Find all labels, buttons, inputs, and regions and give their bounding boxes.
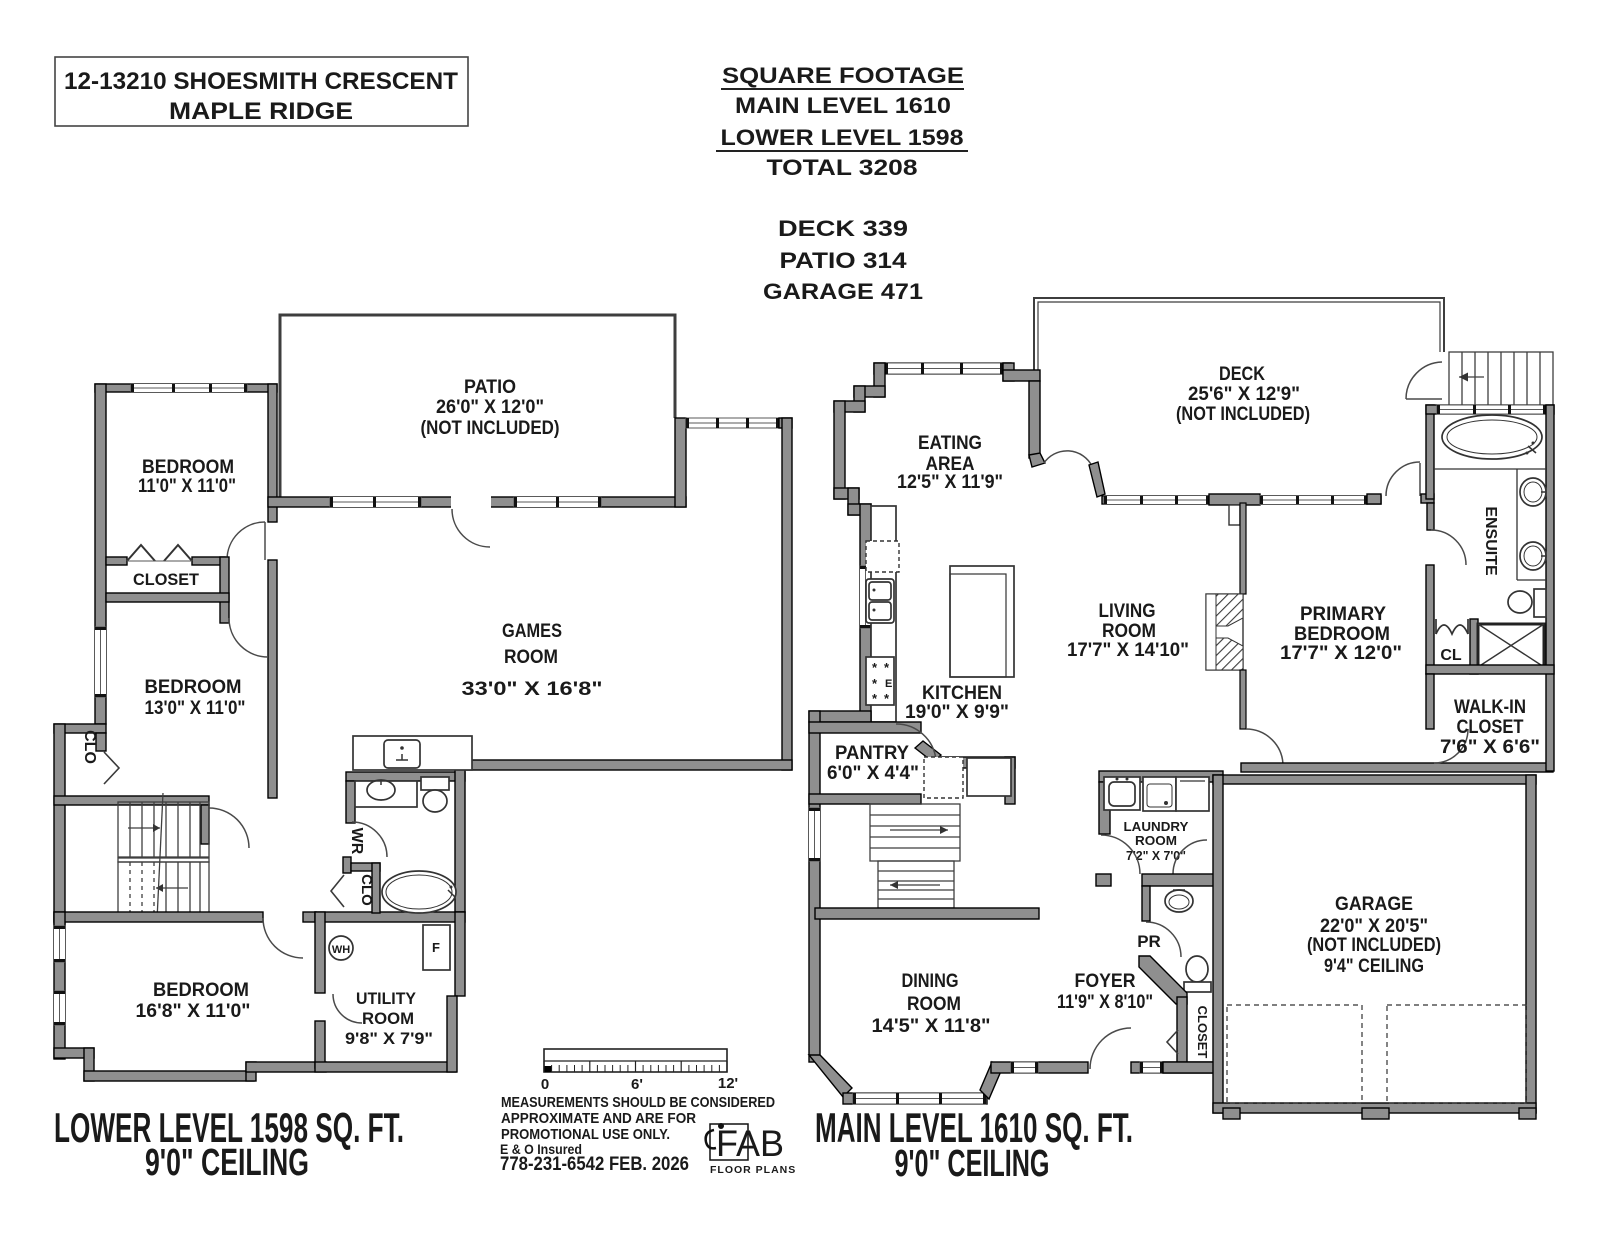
svg-text:14'5" X 11'8": 14'5" X 11'8" [872, 1016, 991, 1037]
svg-text:MAIN LEVEL 1610: MAIN LEVEL 1610 [735, 93, 951, 118]
svg-text:12'5" X 11'9": 12'5" X 11'9" [897, 472, 1003, 493]
svg-text:LOWER LEVEL 1598: LOWER LEVEL 1598 [721, 125, 964, 150]
svg-text:E: E [885, 678, 892, 690]
svg-text:LIVING: LIVING [1099, 601, 1156, 622]
svg-text:UTILITY: UTILITY [356, 989, 417, 1008]
svg-text:9'4" CEILING: 9'4" CEILING [1324, 956, 1424, 977]
svg-text:(NOT INCLUDED): (NOT INCLUDED) [1307, 935, 1441, 956]
svg-text:33'0" X 16'8": 33'0" X 16'8" [462, 679, 603, 700]
svg-text:12-13210 SHOESMITH CRESCENT: 12-13210 SHOESMITH CRESCENT [64, 68, 458, 95]
svg-text:25'6" X 12'9": 25'6" X 12'9" [1188, 384, 1300, 405]
svg-text:BEDROOM: BEDROOM [153, 980, 249, 1001]
svg-text:FOYER: FOYER [1075, 971, 1136, 992]
svg-text:BEDROOM: BEDROOM [1294, 624, 1390, 645]
svg-text:DINING: DINING [902, 971, 959, 992]
svg-text:GARAGE: GARAGE [1335, 894, 1413, 915]
svg-text:19'0" X 9'9": 19'0" X 9'9" [905, 702, 1009, 723]
svg-text:CLOSET: CLOSET [1195, 1006, 1210, 1059]
svg-text:ROOM: ROOM [362, 1009, 414, 1028]
svg-text:9'0" CEILING: 9'0" CEILING [145, 1142, 309, 1184]
svg-text:(NOT INCLUDED): (NOT INCLUDED) [421, 418, 560, 439]
svg-text:6'0" X 4'4": 6'0" X 4'4" [827, 763, 919, 784]
svg-text:9'0" CEILING: 9'0" CEILING [895, 1143, 1050, 1185]
svg-text:EATING: EATING [918, 433, 982, 454]
svg-text:CLO: CLO [358, 874, 375, 906]
svg-text:9'8" X 7'9": 9'8" X 7'9" [345, 1029, 433, 1048]
svg-text:KITCHEN: KITCHEN [922, 683, 1002, 704]
svg-text:(NOT INCLUDED): (NOT INCLUDED) [1176, 404, 1310, 425]
svg-text:MEASUREMENTS SHOULD BE CONSIDE: MEASUREMENTS SHOULD BE CONSIDERED [501, 1094, 775, 1111]
svg-text:6': 6' [631, 1076, 643, 1093]
svg-text:12': 12' [718, 1075, 738, 1092]
svg-text:LAUNDRY: LAUNDRY [1124, 819, 1189, 834]
svg-text:ROOM: ROOM [1102, 621, 1156, 642]
svg-text:CLOSET: CLOSET [133, 570, 200, 589]
svg-text:CLO: CLO [81, 730, 98, 764]
svg-text:778-231-6542 FEB. 2026: 778-231-6542 FEB. 2026 [500, 1154, 689, 1175]
svg-text:PRIMARY: PRIMARY [1300, 604, 1386, 625]
svg-text:FAB: FAB [716, 1123, 784, 1164]
svg-text:7'6" X 6'6": 7'6" X 6'6" [1440, 737, 1540, 758]
svg-text:GAMES: GAMES [502, 621, 562, 642]
svg-text:17'7" X 14'10": 17'7" X 14'10" [1067, 640, 1189, 661]
svg-text:26'0" X 12'0": 26'0" X 12'0" [436, 397, 544, 418]
svg-text:TOTAL 3208: TOTAL 3208 [767, 155, 918, 180]
svg-text:BEDROOM: BEDROOM [145, 677, 242, 698]
svg-text:APPROXIMATE AND ARE FOR: APPROXIMATE AND ARE FOR [501, 1110, 696, 1127]
svg-text:WR: WR [348, 828, 365, 855]
svg-text:PATIO: PATIO [464, 377, 516, 398]
svg-text:MAPLE RIDGE: MAPLE RIDGE [169, 98, 353, 125]
svg-text:PR: PR [1137, 932, 1161, 951]
svg-text:CLOSET: CLOSET [1457, 717, 1524, 738]
svg-text:FLOOR PLANS: FLOOR PLANS [710, 1164, 796, 1176]
svg-text:CL: CL [1440, 647, 1462, 664]
svg-text:F: F [432, 940, 440, 955]
svg-text:11'0" X 11'0": 11'0" X 11'0" [138, 476, 236, 497]
svg-text:DECK 339: DECK 339 [778, 216, 908, 241]
svg-text:WALK-IN: WALK-IN [1454, 697, 1526, 718]
svg-text:ROOM: ROOM [1135, 833, 1177, 848]
svg-text:11'9" X 8'10": 11'9" X 8'10" [1057, 992, 1153, 1013]
svg-text:DECK: DECK [1219, 364, 1265, 385]
svg-text:ROOM: ROOM [907, 994, 961, 1015]
svg-text:ROOM: ROOM [504, 647, 558, 668]
svg-text:PATIO 314: PATIO 314 [780, 248, 908, 273]
svg-text:WH: WH [332, 944, 350, 956]
svg-text:PANTRY: PANTRY [835, 743, 909, 764]
svg-text:16'8" X 11'0": 16'8" X 11'0" [136, 1001, 251, 1022]
svg-text:ENSUITE: ENSUITE [1482, 506, 1499, 576]
svg-text:GARAGE 471: GARAGE 471 [763, 279, 923, 304]
svg-text:13'0" X 11'0": 13'0" X 11'0" [145, 698, 246, 719]
svg-text:SQUARE FOOTAGE: SQUARE FOOTAGE [722, 63, 964, 88]
svg-text:0: 0 [541, 1076, 549, 1093]
svg-text:22'0" X 20'5": 22'0" X 20'5" [1320, 916, 1428, 937]
svg-text:BEDROOM: BEDROOM [142, 457, 234, 478]
svg-text:17'7" X 12'0": 17'7" X 12'0" [1280, 643, 1402, 664]
